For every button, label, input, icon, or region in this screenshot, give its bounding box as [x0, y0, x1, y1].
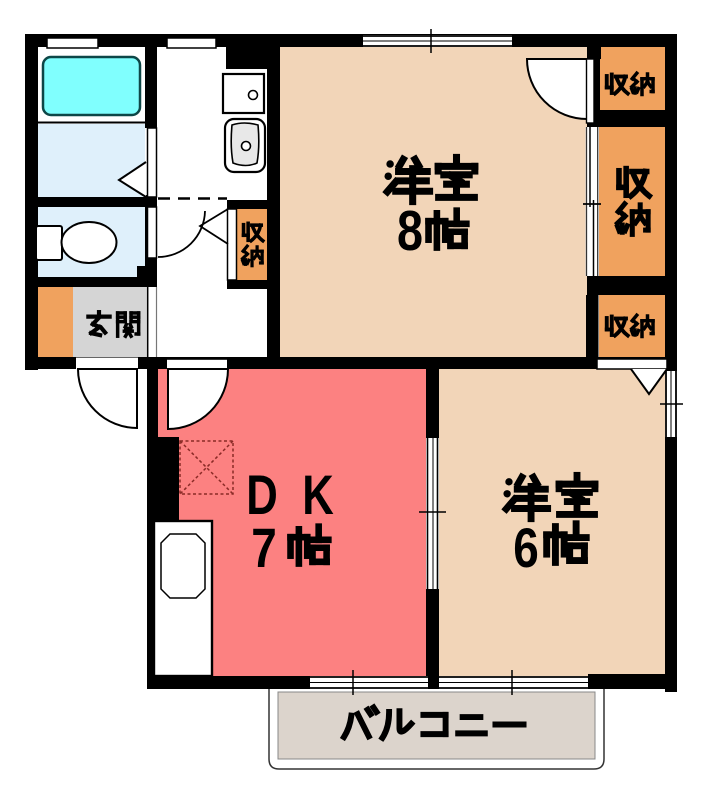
- svg-text:6: 6: [513, 517, 539, 579]
- svg-text:8: 8: [397, 200, 423, 263]
- svg-text:7: 7: [251, 517, 277, 579]
- svg-text:K: K: [302, 464, 334, 526]
